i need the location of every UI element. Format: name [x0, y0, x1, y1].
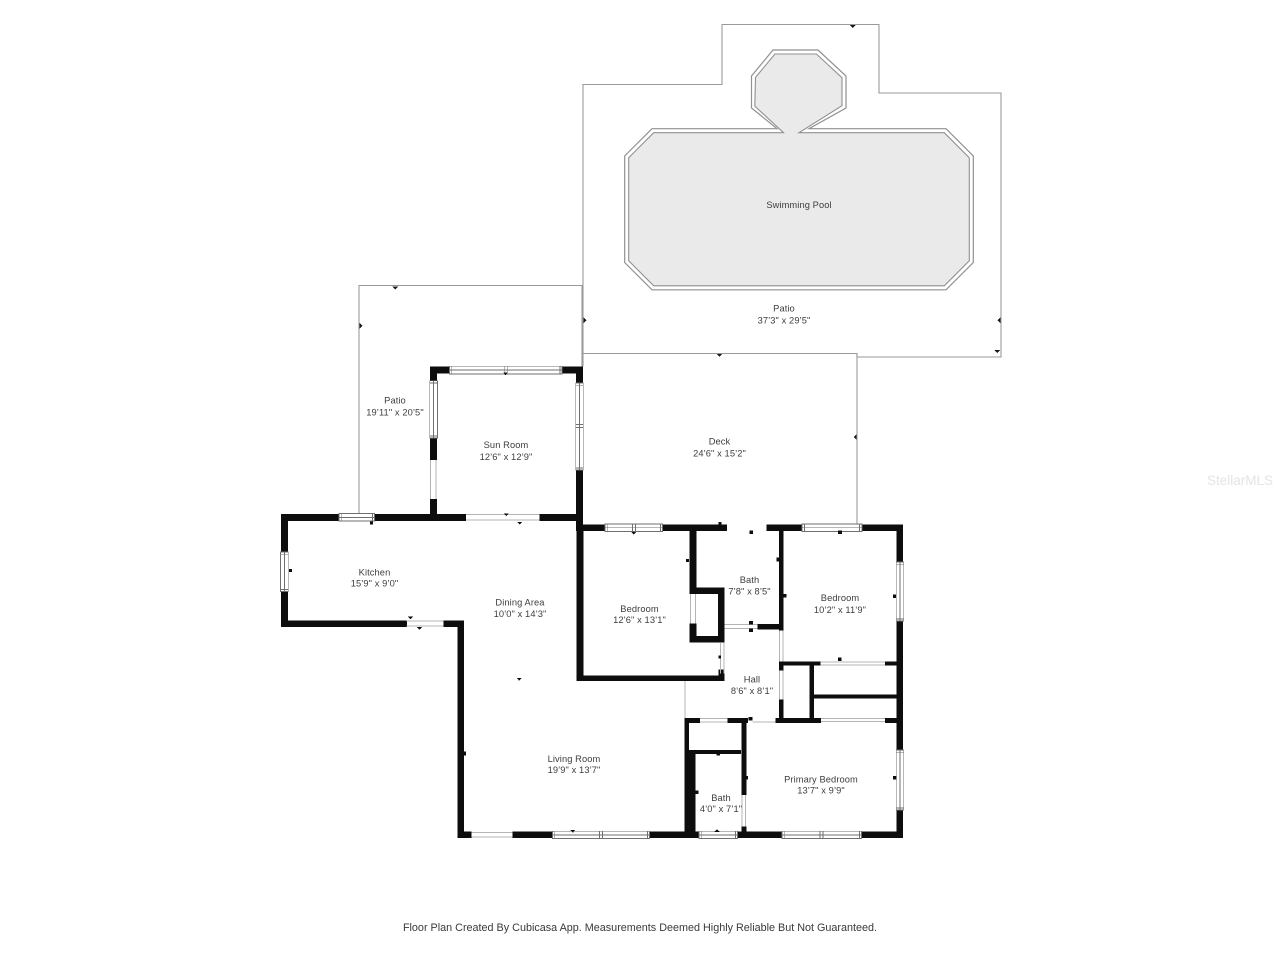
svg-text:Bath: Bath — [711, 793, 731, 803]
svg-text:StellarMLS: StellarMLS — [1207, 473, 1273, 488]
svg-text:7’8" x 8’5": 7’8" x 8’5" — [728, 587, 770, 597]
svg-text:Sun Room: Sun Room — [484, 440, 529, 450]
svg-text:Patio: Patio — [773, 304, 795, 314]
svg-text:24’6" x 15’2": 24’6" x 15’2" — [693, 449, 746, 459]
svg-text:10’2" x 11’9": 10’2" x 11’9" — [814, 605, 866, 615]
svg-text:15’9" x 9’0": 15’9" x 9’0" — [351, 579, 399, 589]
svg-text:10’0" x 14’3": 10’0" x 14’3" — [494, 609, 547, 619]
svg-text:8’6" x 8’1": 8’6" x 8’1" — [731, 686, 773, 696]
svg-text:Patio: Patio — [384, 396, 406, 406]
svg-text:13’7" x 9’9": 13’7" x 9’9" — [797, 786, 845, 796]
svg-text:Deck: Deck — [709, 437, 731, 447]
svg-text:19’9" x 13’7": 19’9" x 13’7" — [548, 765, 601, 775]
svg-text:Hall: Hall — [744, 675, 760, 685]
svg-text:19’11" x 20’5": 19’11" x 20’5" — [366, 408, 423, 418]
svg-text:Swimming Pool: Swimming Pool — [766, 200, 831, 210]
svg-text:Bedroom: Bedroom — [620, 604, 659, 614]
svg-text:4’0" x 7’1": 4’0" x 7’1" — [700, 804, 742, 814]
svg-text:12’6" x 12’9": 12’6" x 12’9" — [480, 452, 533, 462]
svg-text:Dining Area: Dining Area — [495, 598, 545, 608]
svg-text:37’3" x 29’5": 37’3" x 29’5" — [758, 316, 811, 326]
svg-text:12’6" x 13’1": 12’6" x 13’1" — [613, 615, 666, 625]
svg-text:Living Room: Living Room — [548, 754, 601, 764]
svg-text:Floor Plan Created By Cubicasa: Floor Plan Created By Cubicasa App. Meas… — [403, 922, 877, 934]
svg-text:Bedroom: Bedroom — [821, 593, 860, 603]
svg-text:Kitchen: Kitchen — [359, 568, 391, 578]
svg-text:Primary Bedroom: Primary Bedroom — [784, 775, 858, 785]
svg-text:Bath: Bath — [740, 575, 760, 585]
